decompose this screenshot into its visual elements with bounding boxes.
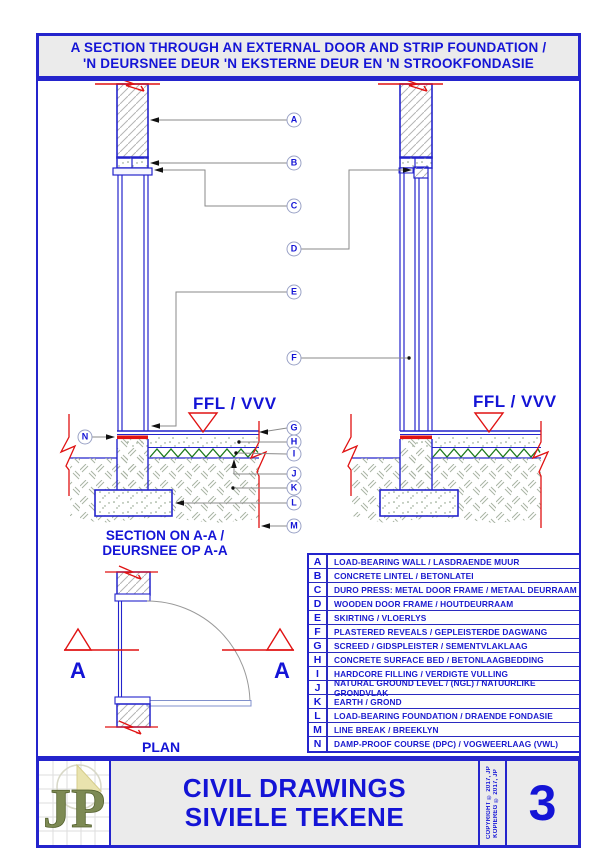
copyright-cell: COPYRIGHT © 2017, JP KOPIEREG © 2017, JP <box>478 761 507 845</box>
callout-m: M <box>287 519 302 534</box>
legend-desc: LOAD-BEARING FOUNDATION / DRAENDE FONDAS… <box>328 709 579 722</box>
callout-j: J <box>287 467 302 482</box>
legend-row: FPLASTERED REVEALS / GEPLEISTERDE DAGWAN… <box>309 625 579 639</box>
legend-desc: SKIRTING / VLOERLYS <box>328 611 579 624</box>
legend-key: G <box>309 639 328 652</box>
legend-desc: NATURAL GROUND LEVEL / (NGL) / NATUURLIK… <box>328 681 579 694</box>
callout-i: I <box>287 447 302 462</box>
title-block-line2: SIVIELE TEKENE <box>185 803 404 832</box>
section-caption: SECTION ON A-A / DEURSNEE OP A-A <box>80 528 250 558</box>
sheet-title-line2: 'N DEURSNEE DEUR 'N EKSTERNE DEUR EN 'N … <box>83 56 534 72</box>
title-block: JP CIVIL DRAWINGS SIVIELE TEKENE COPYRIG… <box>36 758 581 848</box>
legend-table: ALOAD-BEARING WALL / LASDRAENDE MUURBCON… <box>307 553 581 753</box>
legend-row: KEARTH / GROND <box>309 695 579 709</box>
legend-key: A <box>309 555 328 568</box>
legend-row: CDURO PRESS: METAL DOOR FRAME / METAAL D… <box>309 583 579 597</box>
legend-desc: LINE BREAK / BREEKLYN <box>328 723 579 736</box>
legend-row: NDAMP-PROOF COURSE (DPC) / VOGWEERLAAG (… <box>309 737 579 751</box>
legend-key: H <box>309 653 328 666</box>
legend-key: M <box>309 723 328 736</box>
jp-logo: JP <box>39 761 109 845</box>
title-block-main: CIVIL DRAWINGS SIVIELE TEKENE <box>111 761 478 845</box>
legend-row: JNATURAL GROUND LEVEL / (NGL) / NATUURLI… <box>309 681 579 695</box>
legend-row: LLOAD-BEARING FOUNDATION / DRAENDE FONDA… <box>309 709 579 723</box>
legend-desc: DURO PRESS: METAL DOOR FRAME / METAAL DE… <box>328 583 579 596</box>
callout-f: F <box>287 351 302 366</box>
copyright-line2: KOPIEREG © 2017, JP <box>493 769 499 838</box>
legend-key: D <box>309 597 328 610</box>
sheet-title-line1: A SECTION THROUGH AN EXTERNAL DOOR AND S… <box>71 40 547 56</box>
legend-row: ESKIRTING / VLOERLYS <box>309 611 579 625</box>
section-marker-label-left: A <box>70 658 86 684</box>
legend-row: DWOODEN DOOR FRAME / HOUTDEURRAAM <box>309 597 579 611</box>
callout-d: D <box>287 242 302 257</box>
callout-n: N <box>78 430 93 445</box>
legend-row: GSCREED / GIDSPLEISTER / SEMENTVLAKLAAG <box>309 639 579 653</box>
legend-desc: LOAD-BEARING WALL / LASDRAENDE MUUR <box>328 555 579 568</box>
legend-key: K <box>309 695 328 708</box>
legend-desc: CONCRETE SURFACE BED / BETONLAAGBEDDING <box>328 653 579 666</box>
logo-cell: JP <box>39 761 111 845</box>
legend-key: J <box>309 681 328 694</box>
legend-key: I <box>309 667 328 680</box>
legend-key: F <box>309 625 328 638</box>
ffl-label-right: FFL / VVV <box>473 392 557 412</box>
drawing-sheet: A SECTION THROUGH AN EXTERNAL DOOR AND S… <box>0 0 614 868</box>
title-block-line1: CIVIL DRAWINGS <box>183 774 406 803</box>
section-marker-label-right: A <box>274 658 290 684</box>
legend-key: E <box>309 611 328 624</box>
legend-key: B <box>309 569 328 582</box>
copyright-line1: COPYRIGHT © 2017, JP <box>486 766 492 839</box>
legend-desc: SCREED / GIDSPLEISTER / SEMENTVLAKLAAG <box>328 639 579 652</box>
callout-b: B <box>287 156 302 171</box>
ffl-label-left: FFL / VVV <box>193 394 277 414</box>
legend-desc: PLASTERED REVEALS / GEPLEISTERDE DAGWANG <box>328 625 579 638</box>
callout-k: K <box>287 481 302 496</box>
callout-g: G <box>287 421 302 436</box>
callout-c: C <box>287 199 302 214</box>
legend-key: C <box>309 583 328 596</box>
callout-e: E <box>287 285 302 300</box>
legend-desc: EARTH / GROND <box>328 695 579 708</box>
legend-row: MLINE BREAK / BREEKLYN <box>309 723 579 737</box>
plan-caption: PLAN <box>142 739 180 755</box>
sheet-title-bar: A SECTION THROUGH AN EXTERNAL DOOR AND S… <box>36 33 581 79</box>
legend-desc: CONCRETE LINTEL / BETONLATEI <box>328 569 579 582</box>
callout-l: L <box>287 496 302 511</box>
logo-text: JP <box>43 778 105 840</box>
legend-key: L <box>309 709 328 722</box>
legend-row: ALOAD-BEARING WALL / LASDRAENDE MUUR <box>309 555 579 569</box>
legend-desc: WOODEN DOOR FRAME / HOUTDEURRAAM <box>328 597 579 610</box>
legend-row: HCONCRETE SURFACE BED / BETONLAAGBEDDING <box>309 653 579 667</box>
callout-a: A <box>287 113 302 128</box>
sheet-number: 3 <box>507 761 578 845</box>
legend-row: BCONCRETE LINTEL / BETONLATEI <box>309 569 579 583</box>
legend-key: N <box>309 737 328 751</box>
legend-desc: DAMP-PROOF COURSE (DPC) / VOGWEERLAAG (V… <box>328 737 579 751</box>
